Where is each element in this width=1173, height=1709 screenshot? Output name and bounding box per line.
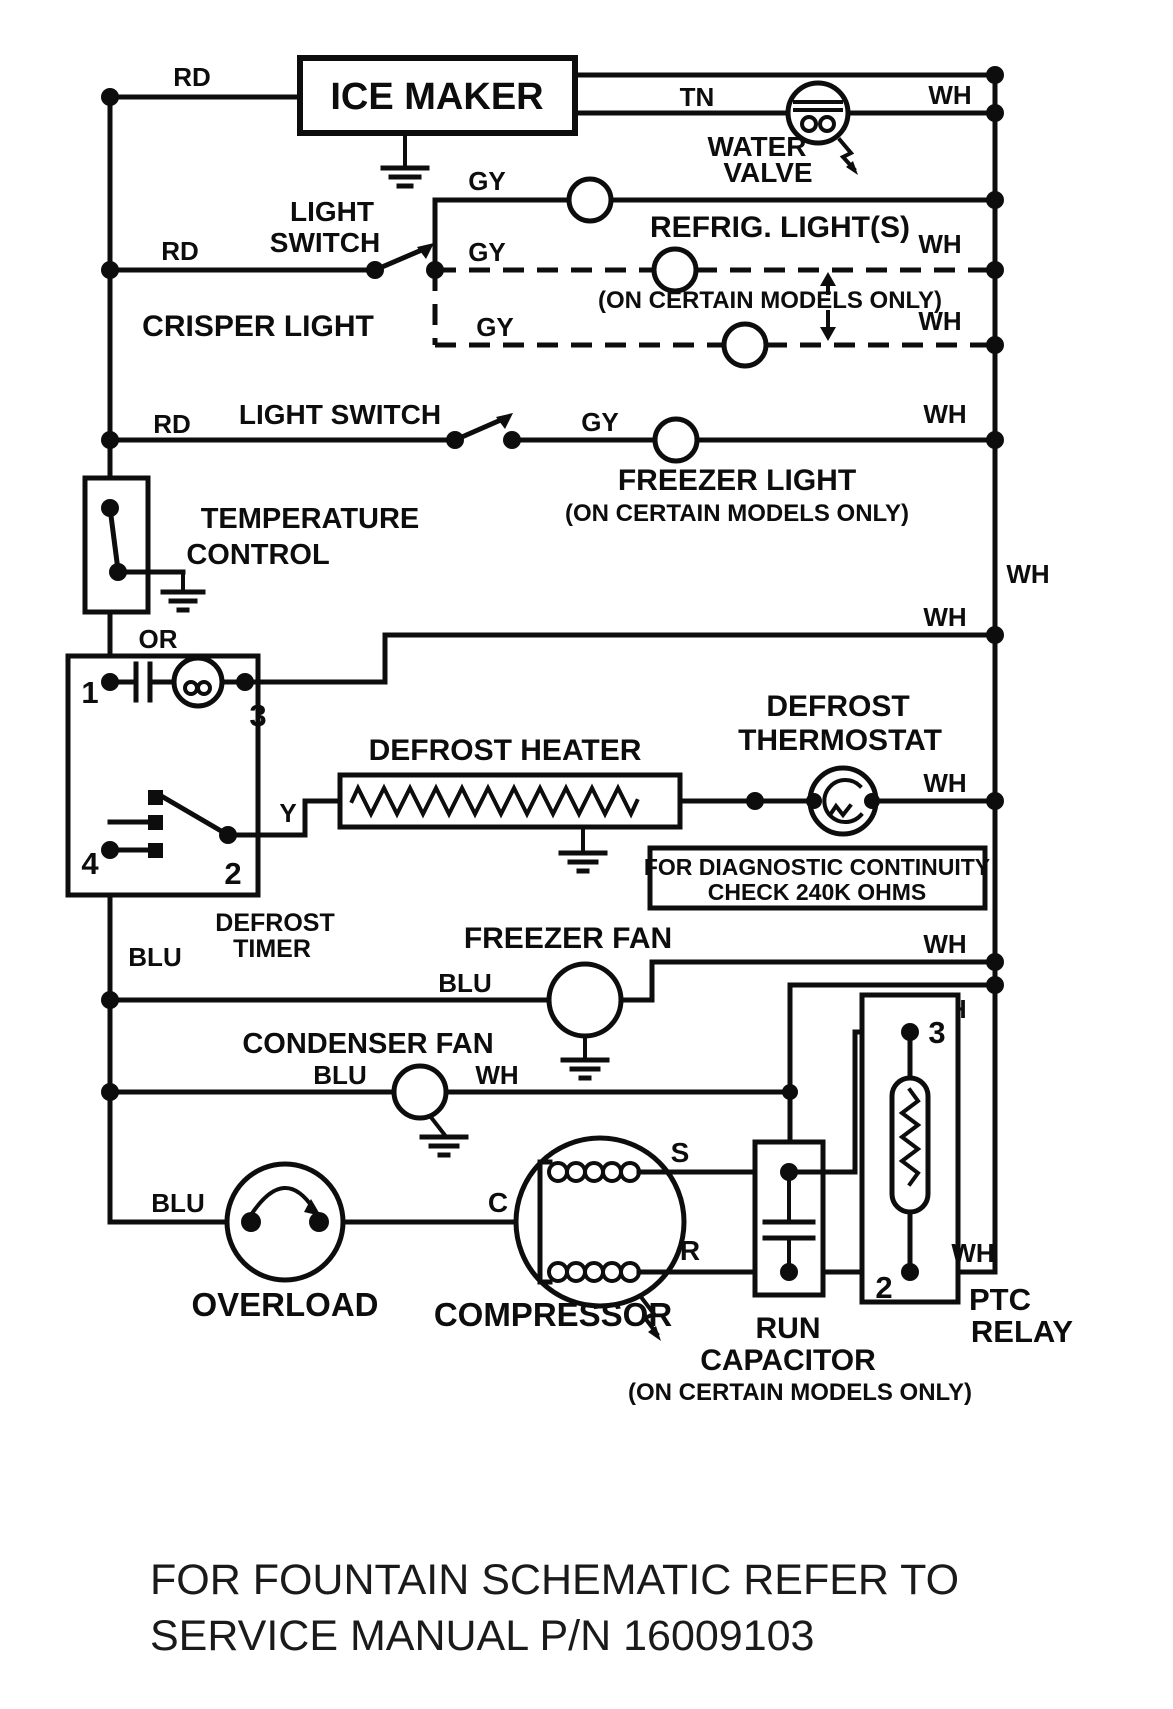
light-switch-1-label-2: SWITCH	[270, 227, 380, 258]
lamp-icon-freezer-light	[655, 419, 697, 461]
freezer-fan-motor-symbol	[549, 964, 621, 1036]
defrost-thermostat-symbol	[806, 768, 880, 834]
wire-label-wh: WH	[475, 1060, 518, 1090]
wire-label-wh: WH	[923, 768, 966, 798]
ptc-terminal-2-dot	[901, 1263, 919, 1281]
terminal-label-s: S	[671, 1137, 690, 1168]
wire-label-gy: GY	[581, 407, 619, 437]
defrost-timer-label-1: DEFROST	[215, 909, 334, 937]
temperature-label-2: CONTROL	[186, 539, 329, 571]
wire-label-gy: GY	[468, 237, 506, 267]
wire-label-wh: WH	[918, 229, 961, 259]
caption-line-2: SERVICE MANUAL P/N 16009103	[150, 1612, 814, 1660]
caption-line-1: FOR FOUNTAIN SCHEMATIC REFER TO	[150, 1556, 959, 1604]
lamp-icon-refrig-light-2	[654, 249, 696, 291]
defrost-heater-label: DEFROST HEATER	[369, 734, 642, 767]
wire-label-rd: RD	[153, 409, 191, 439]
diagnostic-note-line1: FOR DIAGNOSTIC CONTINUITY	[644, 854, 990, 880]
wire-label-wh-rail: WH	[1006, 559, 1049, 589]
ptc-terminal-2: 2	[875, 1270, 892, 1305]
freezer-light-label: FREEZER LIGHT	[618, 464, 856, 497]
ground-icon-freezer-fan	[563, 1036, 607, 1078]
wire-label-rd: RD	[173, 62, 211, 92]
wire-label-blu: BLU	[151, 1188, 204, 1218]
junction-dot	[101, 499, 119, 517]
note-on-certain-models-2: (ON CERTAIN MODELS ONLY)	[565, 500, 909, 527]
wire-label-wh: WH	[923, 929, 966, 959]
timer-terminal-4: 4	[81, 846, 99, 881]
wire-label-tn: TN	[680, 82, 715, 112]
ptc-relay-label-1: PTC	[969, 1282, 1031, 1317]
defrost-timer-label-2: TIMER	[233, 935, 311, 963]
wire-label-blu: BLU	[438, 968, 491, 998]
ground-icon-condenser-fan	[422, 1116, 466, 1155]
wire-label-blu: BLU	[313, 1060, 366, 1090]
compressor-label: COMPRESSOR	[434, 1296, 673, 1333]
ground-icon-heater	[561, 827, 605, 871]
refrig-lights-section: RD LIGHT SWITCH GY REFRIG. LIGHT(S) GY W…	[110, 166, 995, 366]
timer-terminal-3: 3	[249, 698, 266, 733]
defrost-thermostat-label-2: THERMOSTAT	[738, 724, 942, 757]
freezer-fan-label: FREEZER FAN	[464, 922, 672, 955]
overload-label: OVERLOAD	[191, 1286, 378, 1323]
terminal-label-r: R	[680, 1235, 700, 1266]
wire-label-wh: WH	[923, 399, 966, 429]
wire-label-gy: GY	[476, 312, 514, 342]
lamp-icon-crisper-light	[724, 324, 766, 366]
ptc-terminal-3: 3	[928, 1015, 945, 1050]
water-valve-label-2: VALVE	[723, 157, 812, 188]
light-switch-1-label-1: LIGHT	[290, 196, 374, 227]
ice-maker-label: ICE MAKER	[330, 76, 543, 118]
temperature-control-section: TEMPERATURE CONTROL OR	[85, 478, 419, 654]
wire-label-blu: BLU	[128, 942, 181, 972]
overload-contact-dot	[241, 1212, 261, 1232]
defrost-heater-section: DEFROST HEATER DEFROST THERMOSTAT WH FOR…	[340, 690, 995, 908]
wire-label-rd: RD	[161, 236, 199, 266]
diagnostic-note-line2: CHECK 240K OHMS	[708, 879, 927, 905]
condenser-fan-section: CONDENSER FAN BLU WH	[110, 1028, 790, 1155]
ground-icon-temp-control	[163, 572, 203, 610]
crisper-light-label: CRISPER LIGHT	[142, 310, 374, 343]
condenser-fan-label: CONDENSER FAN	[242, 1028, 493, 1060]
schematic-canvas: RD ICE MAKER TN WH WATER VALVE RD	[0, 0, 1173, 1709]
note-on-certain-models-3: (ON CERTAIN MODELS ONLY)	[628, 1379, 972, 1406]
lamp-icon-refrig-light	[569, 179, 611, 221]
run-capacitor-label-2: CAPACITOR	[700, 1344, 876, 1377]
wire-label-wh: WH	[923, 602, 966, 632]
wire-wh-timer-to-rail	[245, 635, 995, 682]
run-capacitor-label-1: RUN	[756, 1312, 821, 1345]
ptc-relay-section: 3 2 WH PTC RELAY	[789, 995, 1073, 1349]
temperature-label-1: TEMPERATURE	[201, 503, 420, 535]
wire-label-wh: WH	[951, 1238, 994, 1268]
ice-maker-section: RD ICE MAKER TN WH WATER VALVE	[110, 58, 995, 188]
wire-label-wh: WH	[928, 80, 971, 110]
junction-dot	[746, 792, 764, 810]
note-on-certain-models-1: (ON CERTAIN MODELS ONLY)	[598, 287, 942, 314]
refrigerator-wiring-schematic: RD ICE MAKER TN WH WATER VALVE RD	[0, 0, 1173, 1709]
timer-motor-symbol	[174, 658, 222, 706]
timer-terminal-1: 1	[81, 675, 98, 710]
timer-terminal-2: 2	[224, 856, 241, 891]
terminal-label-c: C	[488, 1187, 508, 1218]
wire-label-or: OR	[139, 624, 178, 654]
capacitor-terminal-dot	[780, 1263, 798, 1281]
light-switch-2-label: LIGHT SWITCH	[239, 399, 441, 430]
defrost-thermostat-label-1: DEFROST	[766, 690, 909, 723]
refrig-lights-label: REFRIG. LIGHT(S)	[650, 211, 910, 244]
ptc-relay-label-2: RELAY	[971, 1314, 1074, 1349]
ground-icon-icemaker	[383, 133, 427, 186]
caption: FOR FOUNTAIN SCHEMATIC REFER TO SERVICE …	[150, 1556, 959, 1660]
condenser-fan-motor-symbol	[394, 1066, 446, 1118]
wire-label-gy: GY	[468, 166, 506, 196]
wire-label-wh: WH	[918, 306, 961, 336]
wire-label-y: Y	[279, 798, 296, 828]
